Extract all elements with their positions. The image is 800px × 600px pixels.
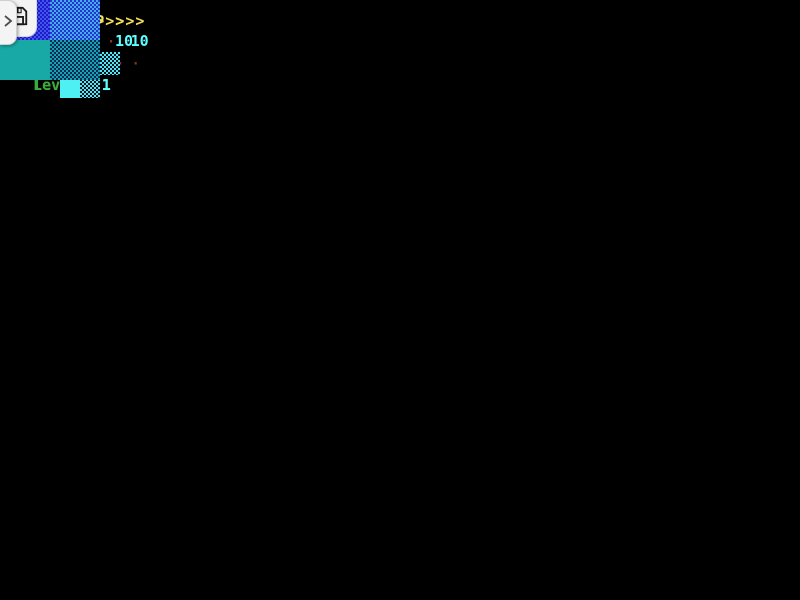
you-score-value: 10 (115, 31, 133, 51)
piece-block (50, 0, 100, 40)
piece-block (50, 40, 100, 80)
preview-block (100, 52, 120, 75)
sidebar-expand-tab[interactable] (0, 0, 17, 45)
champ-score-value: 10 (131, 31, 149, 51)
chevron-right-icon (3, 13, 13, 32)
piece-block (0, 40, 50, 80)
you-level-value: 1 (102, 75, 111, 95)
